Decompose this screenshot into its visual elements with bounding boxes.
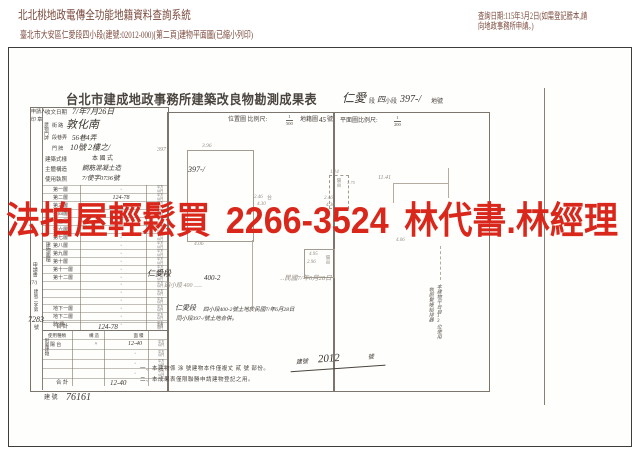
lot-section-value: 仁愛 [342, 92, 366, 105]
site-line3: 同小段397-/號土地合併。 [176, 316, 237, 322]
applicant-label: 申請人 [31, 110, 46, 116]
street-value: 敦化南 [66, 119, 99, 131]
structure-label: 主體構造 [45, 167, 67, 173]
lot-dim-bottom: 4.06 [194, 241, 204, 247]
floor-row-unit: 平方公尺 [157, 290, 167, 297]
floor-row-unit: 平方公尺 [157, 258, 167, 265]
floor-row-value: · [85, 306, 157, 312]
lane-value: 56巷4弄 [72, 134, 97, 142]
map-sheet-suffix: 號 [327, 117, 333, 124]
lot-label: 397-/ [188, 166, 205, 175]
floor-row-unit: 平方公尺 [157, 314, 167, 321]
plan-line-h1 [393, 183, 448, 184]
form-right-edge [544, 88, 545, 405]
lower-balcony-label: 陽台 [325, 255, 330, 271]
floor-row: 第八層 · 平方公尺 [42, 241, 167, 249]
stamp-suffix: 號 [368, 354, 374, 361]
floor-row-value: · [85, 251, 157, 257]
plan-line-v2 [393, 183, 394, 203]
annex-header-type: 使用種類 [42, 333, 78, 339]
plan-cluster-d4: 3.75 [347, 181, 355, 186]
ad-phone: 2266-3524 [226, 200, 389, 241]
street-label: 街 路 [52, 124, 63, 130]
note-2: 二、本成果表僅限聯勝申請建物登記之用。 [140, 377, 254, 383]
floor-row-value: · [85, 187, 157, 193]
floor-row: 第九層 · 平方公尺 [42, 249, 167, 257]
annex-row-struct: 〃 [80, 341, 112, 347]
site-line2-a: 仁愛段 [175, 304, 196, 312]
floor-plan-scale: 1200 [394, 116, 401, 127]
lot-dim-side: 397 [157, 147, 166, 154]
annex-row-area: 12-40 [112, 341, 158, 347]
plan-cluster-d1: 1.14 [330, 170, 339, 176]
ad-text-left: 法拍屋輕鬆買 [6, 200, 210, 241]
screenshot-root: 北北桃地政電傳全功能地籍資料查詢系統 查詢日期:115年3月2日(如需登記謄本,… [0, 0, 640, 453]
lower-d1: 4.95 [309, 252, 318, 258]
application-label: 申請書 [31, 262, 37, 279]
floor-row-value: · [85, 314, 157, 320]
site-line1-b: 400-2 [204, 274, 220, 282]
floor-row-label: 地下一層 [42, 305, 85, 312]
floor-row-unit: 平方公尺 [157, 306, 167, 313]
floor-row-label: 第十層 [42, 258, 85, 265]
floor-row-value: · [85, 243, 157, 249]
map-sheet-label: 地籍圖 [300, 117, 318, 124]
floor-row: 地下一層 · 平方公尺 [42, 304, 167, 312]
site-line2-b: 四小段400-2號土地於民國7/年6月28日 [203, 307, 294, 313]
plan-balcony-label: 陽台 [336, 178, 341, 196]
floor-plan-header: 平面圖比例尺: [340, 118, 378, 125]
annex-header-struct: 構 造 [78, 333, 110, 339]
lower-d2: 2.96 [307, 260, 316, 266]
bottom-ref-label: 建 號 [44, 395, 58, 402]
plan-note-left: 執照繫帳給排器 [427, 287, 433, 365]
lot-section-label: 段 [369, 99, 375, 106]
annex-row: · 平方公尺 [42, 349, 167, 359]
floor-row-label: 第十一層 [42, 266, 85, 273]
floor-row-value: · [85, 259, 157, 265]
style-value: 本 國 式 [92, 156, 113, 163]
application-num: 7283 [28, 316, 44, 325]
plan-line-v1 [448, 168, 449, 198]
stamp-number: 2012 [317, 352, 340, 366]
ad-watermark: 法拍屋輕鬆買2266-3524林代書.林經理 [6, 201, 618, 241]
annex-row: 陽 台 〃 12-40 平方公尺 [42, 339, 167, 349]
ad-text-right: 林代書.林經理 [404, 200, 618, 241]
site-line1-c: ‥民國7/年6月28日 [280, 275, 332, 282]
annex-row-unit: 平方公尺 [158, 351, 167, 358]
floor-row: · 平方公尺 [42, 297, 167, 305]
lot-subsection-label: 小段 [385, 99, 397, 106]
form-title: 台北市建成地政事務所建築改良物勘測成果表 [66, 89, 317, 108]
floor-row: 第一層 · 平方公尺 [42, 185, 167, 193]
annex-header-area: 面 積 [110, 333, 167, 339]
floor-row-unit: 平方公尺 [157, 186, 167, 193]
lot-number-label: 地號 [431, 99, 443, 106]
floor-row-label: 第八層 [42, 242, 85, 249]
stamp-prefix: 建號 [296, 359, 308, 367]
site-line1-a: 仁愛段 [147, 270, 171, 279]
map-sheet-no: 45 [319, 116, 326, 124]
lot-number-value: 397-/ [400, 94, 421, 105]
floor-row-label: 第九層 [42, 250, 85, 257]
floor-row: · 平方公尺 [42, 281, 167, 289]
plan-dim-top: 11.41 [378, 175, 391, 182]
annex-total-value: 12-40 [110, 379, 126, 387]
location-map-header: 位置圖 比例尺: [228, 117, 267, 124]
plan-note-right: 本建物平台自13位使用 [435, 284, 441, 366]
note-1: 一、本建物係 涂 號建物本件僅複丈 貳 號 部份。 [140, 366, 269, 372]
lot-subsection-value: 四 [377, 96, 385, 105]
street-line [252, 240, 253, 310]
location-map-scale: 1500 [286, 115, 293, 126]
floor-row-unit: 平方公尺 [157, 298, 167, 305]
receive-date-value: 7/年7月26日 [72, 108, 114, 117]
floor-row-value: · [85, 298, 157, 304]
bottom-ref-value: 76161 [66, 392, 91, 403]
floor-row-label: 第一層 [42, 186, 85, 193]
floor-row-value: · [85, 282, 157, 288]
application-mid: 建地二字第 [33, 289, 38, 315]
lot-dim-top: 3.96 [202, 143, 212, 149]
annex-total-label: 合 計 [56, 380, 68, 386]
application-pre: (7/) [30, 281, 37, 287]
structure-value: 鋼筋混凝土造 [82, 165, 121, 172]
plan-line-v3 [440, 246, 441, 280]
annex-row-unit: 平方公尺 [158, 341, 167, 348]
floor-row-value: · [85, 290, 157, 296]
seal-label: 印 章 [31, 118, 42, 124]
license-label: 使用執照 [45, 177, 67, 183]
annex-row-type: 陽 台 [42, 341, 80, 348]
door-value: 10號 2樓之/ [70, 144, 110, 153]
floor-row: · 平方公尺 [42, 289, 167, 297]
door-label: 門 牌 [52, 147, 63, 153]
floor-row: 地下二層 · 平方公尺 [42, 312, 167, 320]
application-suf: 號 [34, 326, 39, 332]
lane-label: 段巷弄 [52, 136, 67, 142]
license-value: 7/使字0736號 [82, 175, 120, 182]
floor-row-unit: 平方公尺 [157, 242, 167, 249]
floor-row: 第十層 · 平方公尺 [42, 257, 167, 265]
site-line1-faint: 四小段 400 ‥‥ [164, 283, 202, 290]
receive-date-label: 收文日期 [45, 110, 67, 116]
floor-row-label: 第十二層 [42, 274, 85, 281]
style-label: 建築式樣 [45, 157, 67, 163]
floor-row-unit: 平方公尺 [157, 250, 167, 257]
annex-row-area: · [112, 351, 158, 357]
floor-row-label: 地下二層 [42, 313, 85, 320]
address-group-label: 建物門牌 [44, 122, 49, 158]
